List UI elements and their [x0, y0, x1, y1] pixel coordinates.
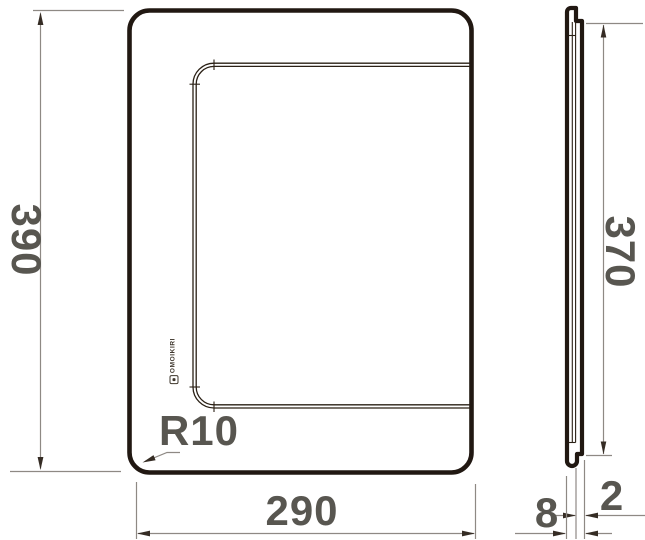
board-inner-contour-outer-line: [193, 63, 470, 408]
drawing-linework: [0, 0, 645, 540]
radius-callout: [143, 453, 181, 463]
omoikiri-logo-text: OMOIKIRI: [171, 338, 178, 373]
arrowhead-leader: [143, 455, 156, 462]
front-view: [130, 11, 472, 473]
arrowhead-down: [601, 442, 607, 455]
front-height-dimension-label: 390: [5, 203, 47, 276]
brand-logo: OMOIKIRI: [170, 338, 179, 384]
profile-inner-lines: [569, 22, 576, 443]
board-inner-contour-inner-line: [196, 66, 470, 404]
front-width-dimension-label: 290: [265, 490, 338, 532]
side-inner-height-dimension-label: 370: [599, 215, 641, 288]
arrowhead-up: [38, 12, 44, 25]
board-outer-outline: [130, 11, 472, 473]
dimension-8: [515, 476, 612, 539]
arrowhead-up: [601, 25, 607, 38]
arrowhead-left: [585, 513, 598, 519]
arrowhead-right: [563, 513, 576, 519]
corner-radius-label: R10: [159, 410, 239, 452]
side-view: [567, 8, 582, 466]
side-thickness-dimension-label: 8: [535, 492, 559, 534]
technical-drawing-sheet: 390 290 R10 370 8 2 OMOIKIRI: [0, 0, 645, 540]
omoikiri-logo-mark: [170, 375, 179, 384]
arrowhead-right: [462, 531, 475, 537]
arrowhead-left: [585, 531, 598, 537]
arrowhead-left: [137, 531, 150, 537]
profile-outline: [567, 8, 582, 466]
arrowhead-down: [38, 457, 44, 470]
side-lip-dimension-label: 2: [600, 475, 624, 517]
